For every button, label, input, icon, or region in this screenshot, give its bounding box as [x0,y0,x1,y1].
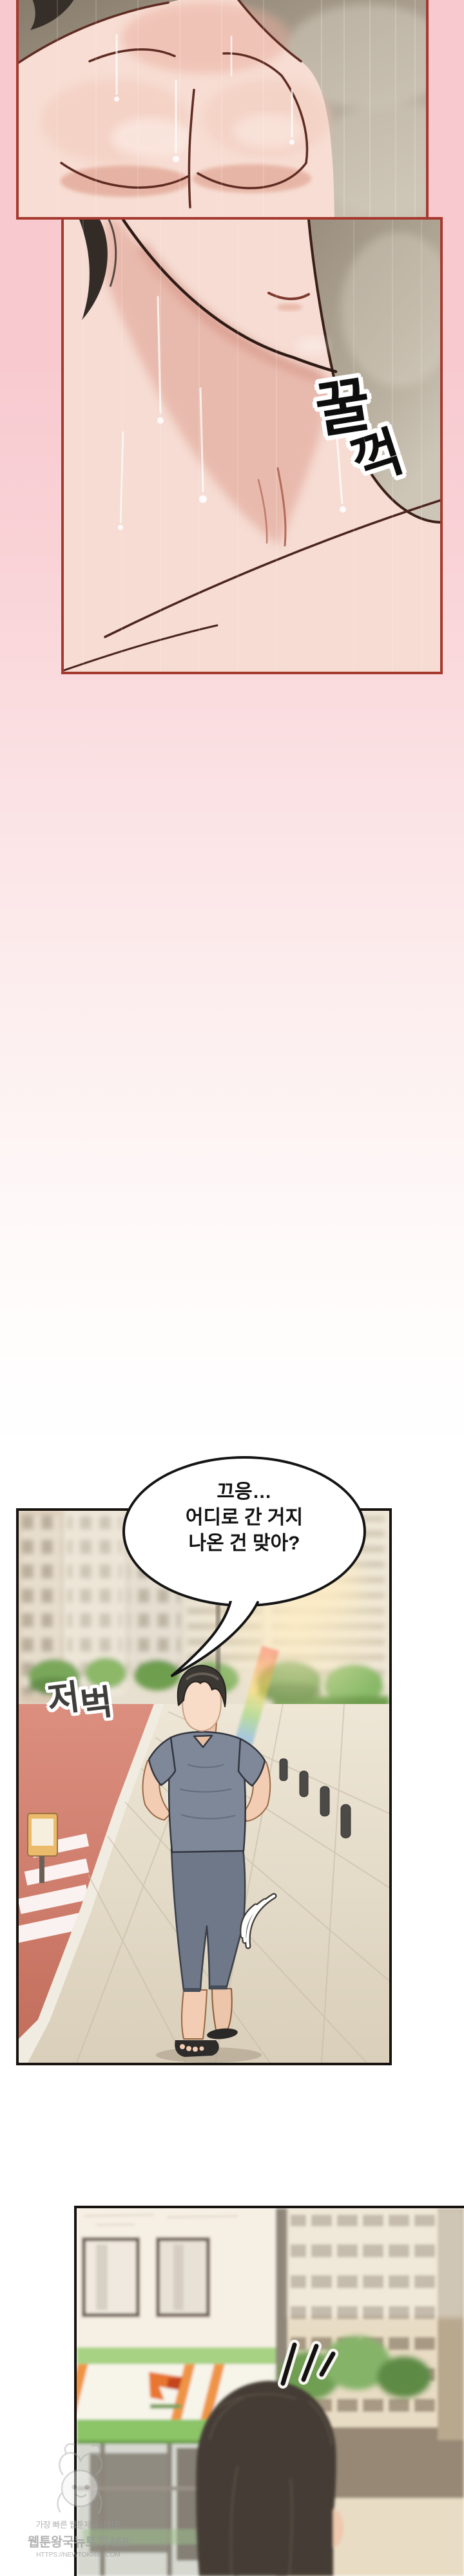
panel-shower-torso [16,0,429,220]
watermark-site-url: HTTPS://NEWTOKI468.COM [22,2552,135,2559]
sfx-step-left-char1: 저 [45,1678,82,1720]
store-scene-illustration [77,2208,464,2576]
panel-shower-neck: 꿀 꺽 [61,217,443,674]
sfx-gulp: 꿀 꺽 [315,360,418,476]
webtoon-page: 꿀 꺽 [0,0,464,2576]
speech-line-1: 끄응… [125,1479,363,1505]
watermark-tagline: 가장 빠른 웹툰제공사이트 [22,2518,135,2530]
speech-line-3: 나온 건 맞아? [125,1531,363,1557]
watermark-mascot-icon [43,2441,114,2517]
sfx-step-left-char2: 벅 [77,1673,115,1727]
speech-line-2: 어디로 간 거지 [125,1505,363,1531]
site-watermark: 가장 빠른 웹툰제공사이트 웹툰왕국뉴토끼468 HTTPS://NEWTOKI… [22,2441,135,2559]
shower-torso-illustration [19,0,426,217]
sfx-footsteps-top-left: 저벅 [44,1664,114,1723]
speech-bubble-tail [168,1601,264,1680]
speech-bubble: 끄응… 어디로 간 거지 나온 건 맞아? [122,1456,366,1607]
watermark-site-name: 웹툰왕국뉴토끼468 [22,2532,135,2550]
